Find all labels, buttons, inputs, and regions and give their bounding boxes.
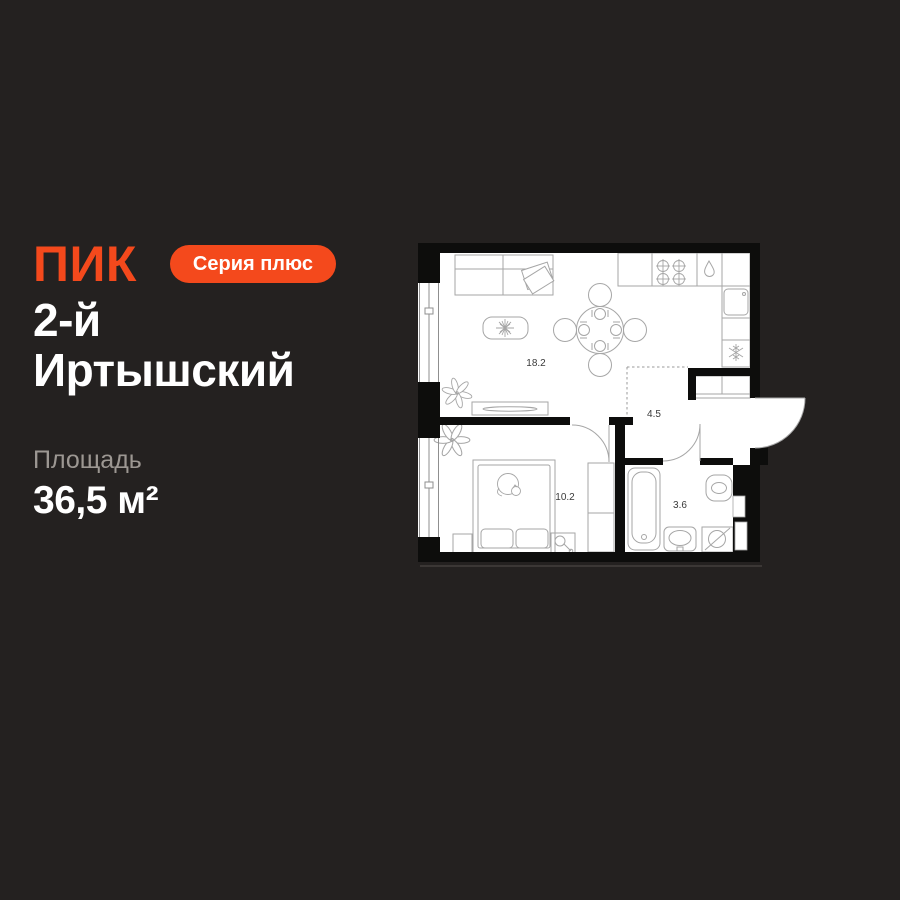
room-label-hallway: 4.5 — [647, 409, 661, 420]
project-title-line2: Иртышский — [33, 346, 294, 396]
area-block: Площадь 36,5 м² — [33, 447, 158, 522]
duct-shaft — [733, 496, 747, 550]
listing-card: { "page": { "background": "#242120" }, "… — [0, 0, 900, 900]
room-label-bedroom: 10.2 — [555, 492, 575, 503]
pik-logo: ПИК — [33, 239, 137, 289]
project-title-line1: 2-й — [33, 296, 294, 346]
entrance-door-swing — [755, 398, 805, 448]
floorplan: 18.2 4.5 10.2 3.6 — [404, 234, 808, 568]
area-label: Площадь — [33, 447, 158, 475]
area-value: 36,5 м² — [33, 480, 158, 523]
project-title: 2-й Иртышский — [33, 296, 294, 395]
floorplan-svg: 18.2 4.5 10.2 3.6 — [404, 234, 808, 568]
series-badge: Серия плюс — [170, 245, 336, 283]
room-label-bathroom: 3.6 — [673, 500, 687, 511]
room-label-living-kitchen: 18.2 — [526, 358, 546, 369]
brand-row: ПИК Серия плюс — [33, 239, 336, 289]
